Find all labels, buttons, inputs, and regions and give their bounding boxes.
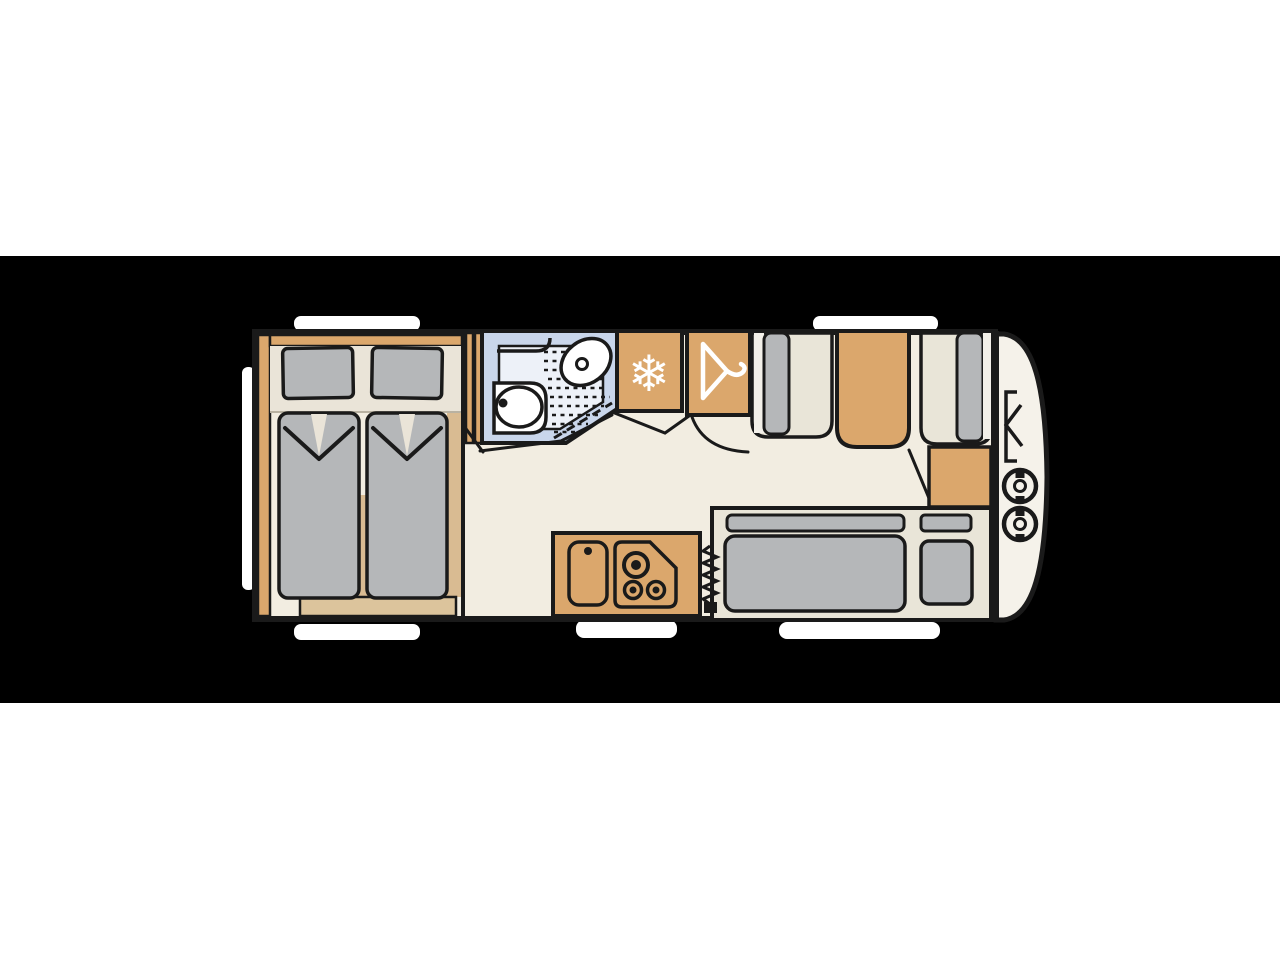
sofa-pillow xyxy=(921,541,972,604)
dinette-seat-left xyxy=(752,333,832,437)
window-top-right xyxy=(813,316,938,331)
window-top-left xyxy=(294,316,420,331)
sofa-back-pillow xyxy=(921,515,971,531)
single-bed-left xyxy=(279,413,359,598)
sofa-backrest xyxy=(727,515,904,531)
bedroom xyxy=(258,333,482,618)
washbasin xyxy=(494,383,546,433)
window-bottom-right xyxy=(779,622,940,639)
bed-foot-step xyxy=(300,597,456,616)
snowflake-icon: ❄ xyxy=(628,345,670,403)
faucet-dot xyxy=(584,547,592,555)
sofa-bed xyxy=(712,508,991,620)
window-bottom-middle xyxy=(576,620,677,638)
bedroom-left-wardrobe-strip xyxy=(258,335,270,616)
bedroom-partition-wall xyxy=(461,333,465,618)
dinette-table xyxy=(837,331,909,447)
refrigerator: ❄ xyxy=(617,331,682,411)
pillow xyxy=(372,347,443,398)
bedside-strip xyxy=(447,413,461,597)
window-bottom-left xyxy=(294,624,420,640)
side-cabinet xyxy=(929,447,991,507)
dinette-seat-right xyxy=(921,333,991,444)
floorplan-image: ❄ xyxy=(0,0,1280,960)
single-bed-right xyxy=(367,413,447,598)
kitchen xyxy=(553,533,700,616)
bedroom-head-shelf xyxy=(270,335,462,346)
partition-post xyxy=(466,333,473,443)
seat-backrest xyxy=(957,333,983,441)
wardrobe xyxy=(687,331,750,415)
pillow xyxy=(283,347,354,398)
sofa-cushion xyxy=(725,536,905,611)
seat-backrest xyxy=(764,333,789,434)
